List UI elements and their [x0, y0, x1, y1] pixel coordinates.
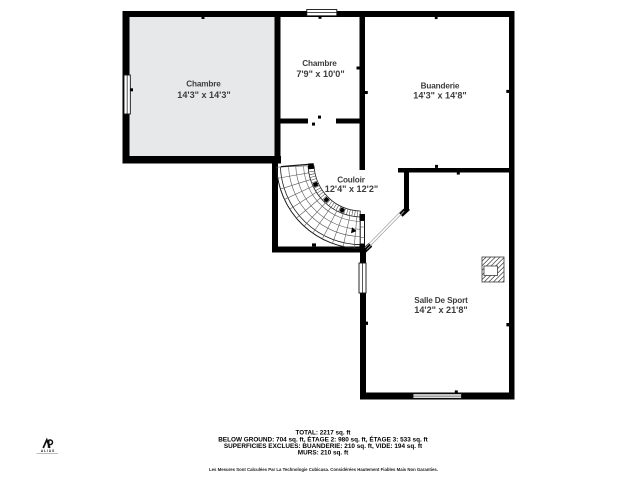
svg-text:BELOW GROUND: 704 sq. ft, ÉTAG: BELOW GROUND: 704 sq. ft, ÉTAGE 2: 980 s… [218, 434, 428, 443]
svg-text:14'3" x 14'8": 14'3" x 14'8" [413, 91, 466, 101]
svg-text:Buanderie: Buanderie [421, 82, 460, 91]
svg-text:12'4" x 12'2": 12'4" x 12'2" [325, 184, 378, 194]
svg-text:A L I A S: A L I A S [41, 449, 55, 453]
svg-text:14'2" x 21'8": 14'2" x 21'8" [414, 305, 467, 315]
svg-text:7'9" x 10'0": 7'9" x 10'0" [296, 69, 344, 79]
svg-text:Chambre: Chambre [302, 59, 337, 68]
svg-text:Les Mesures Sont Calculées Par: Les Mesures Sont Calculées Par La Techno… [209, 467, 438, 472]
svg-text:Chambre: Chambre [186, 80, 221, 89]
svg-text:14'3" x 14'3": 14'3" x 14'3" [177, 90, 230, 100]
svg-text:MURS: 210 sq. ft: MURS: 210 sq. ft [298, 450, 349, 457]
svg-text:Salle De Sport: Salle De Sport [414, 296, 468, 305]
